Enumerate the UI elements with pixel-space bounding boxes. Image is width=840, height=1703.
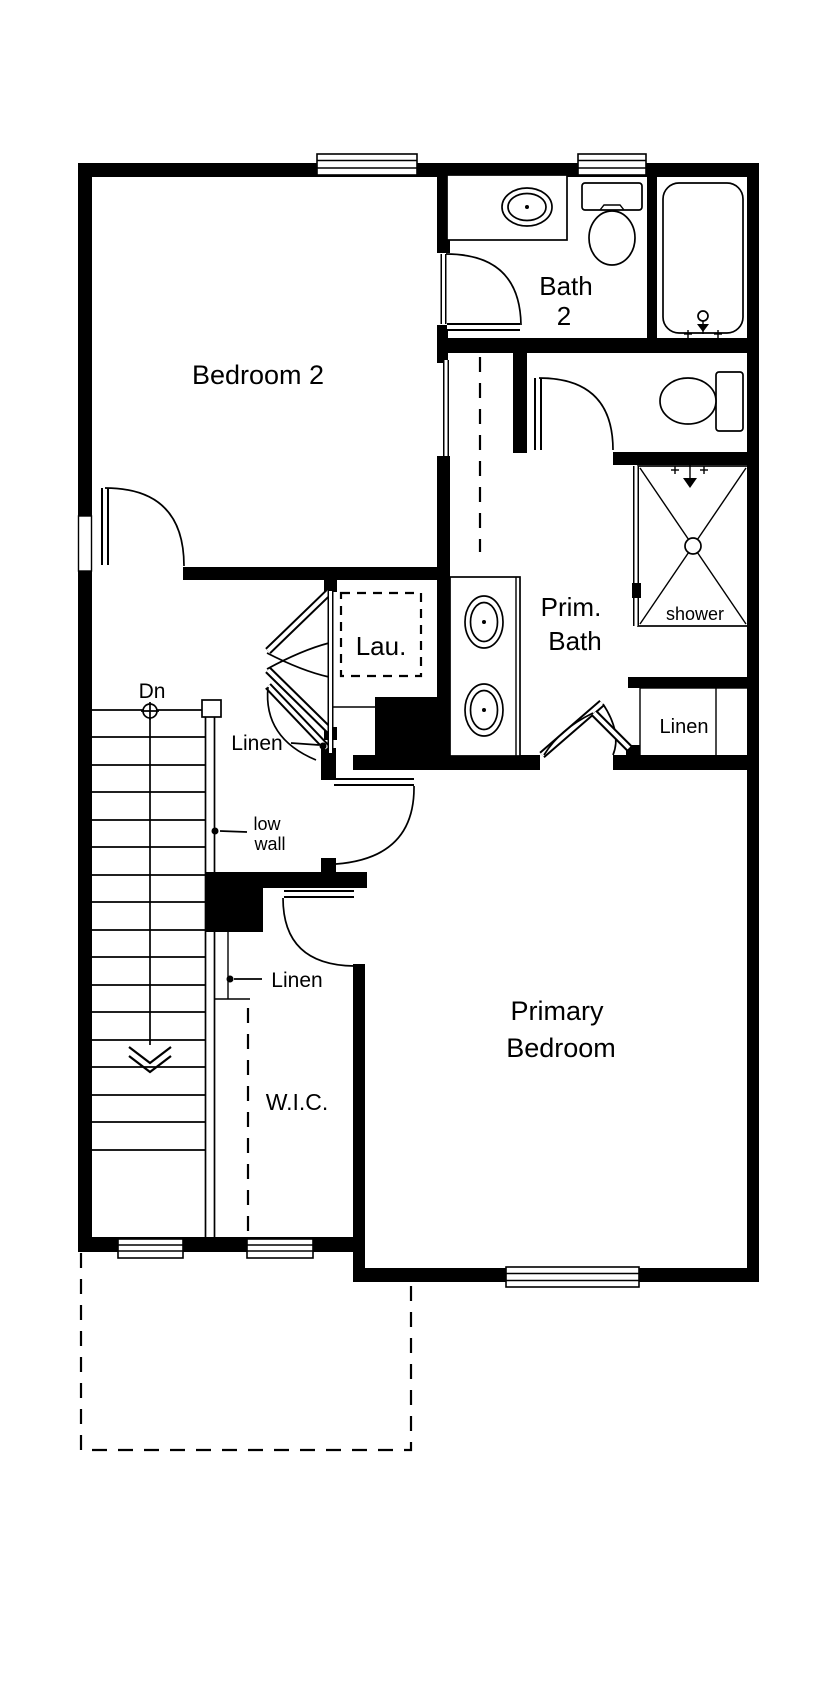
window-primary-bedroom <box>506 1267 639 1287</box>
laundry-label: Lau. <box>356 631 407 661</box>
prim-bath-label-line1: Prim. <box>541 592 602 622</box>
primary-bedroom-label-line2: Bedroom <box>506 1033 616 1063</box>
prim-vanity <box>450 577 520 756</box>
bath2-toilet <box>582 183 642 265</box>
window-top-bedroom2 <box>317 154 417 175</box>
toilet-room-door <box>538 378 613 450</box>
leader-lines <box>212 743 327 983</box>
wic-label: W.I.C. <box>266 1089 329 1115</box>
window-top-bath2 <box>578 154 646 175</box>
wc-toilet <box>660 372 743 431</box>
window-bottom-left-b <box>247 1239 313 1258</box>
walk-line-start-symbol <box>141 702 159 720</box>
stairs <box>92 700 221 1237</box>
low-wall-label-line1: low <box>253 814 281 834</box>
linen-wic-label: Linen <box>271 969 322 992</box>
linen-bath-label: Linen <box>660 716 709 738</box>
bathtub <box>663 183 743 338</box>
shower-head-icon <box>671 464 708 488</box>
bath2-sink <box>502 188 552 226</box>
bath2-door <box>444 254 522 327</box>
newel-cap <box>202 700 221 717</box>
floor-plan-drawing: Bedroom 2 Bath 2 Prim. Bath Lau. Primary… <box>0 0 840 1703</box>
bedroom2-door <box>105 488 184 566</box>
stair-treads <box>92 710 205 1150</box>
bath2-label-line2: 2 <box>557 301 571 331</box>
labels: Bedroom 2 Bath 2 Prim. Bath Lau. Primary… <box>139 271 724 1115</box>
linen-wic-closet <box>214 932 250 999</box>
shower-label: shower <box>666 604 724 624</box>
linen-hall-label: Linen <box>231 732 282 755</box>
roof-outline-dashed <box>81 1253 411 1450</box>
bath2-label-line1: Bath <box>539 271 593 301</box>
linen-wic-leader <box>227 976 263 983</box>
prim-bath-label-line2: Bath <box>548 626 602 656</box>
primary-bedroom-label-line1: Primary <box>511 996 604 1026</box>
laundry-bifold-doors <box>267 592 329 730</box>
low-wall-label-line2: wall <box>253 834 285 854</box>
bedroom2-label: Bedroom 2 <box>192 360 324 390</box>
bath2-fixtures <box>447 175 743 338</box>
linen-hall-leader <box>291 743 327 750</box>
hall-door <box>334 782 414 864</box>
floor-plan: Bedroom 2 Bath 2 Prim. Bath Lau. Primary… <box>0 0 840 1703</box>
window-bottom-left-a <box>118 1239 183 1258</box>
shower <box>632 464 748 626</box>
dn-label: Dn <box>139 680 166 703</box>
low-wall-leader <box>212 828 248 835</box>
door-jamb-recess <box>79 516 92 571</box>
primary-bedroom-door <box>283 894 354 966</box>
prim-bath-fixtures <box>450 372 750 758</box>
down-arrow-icon <box>129 1047 171 1072</box>
